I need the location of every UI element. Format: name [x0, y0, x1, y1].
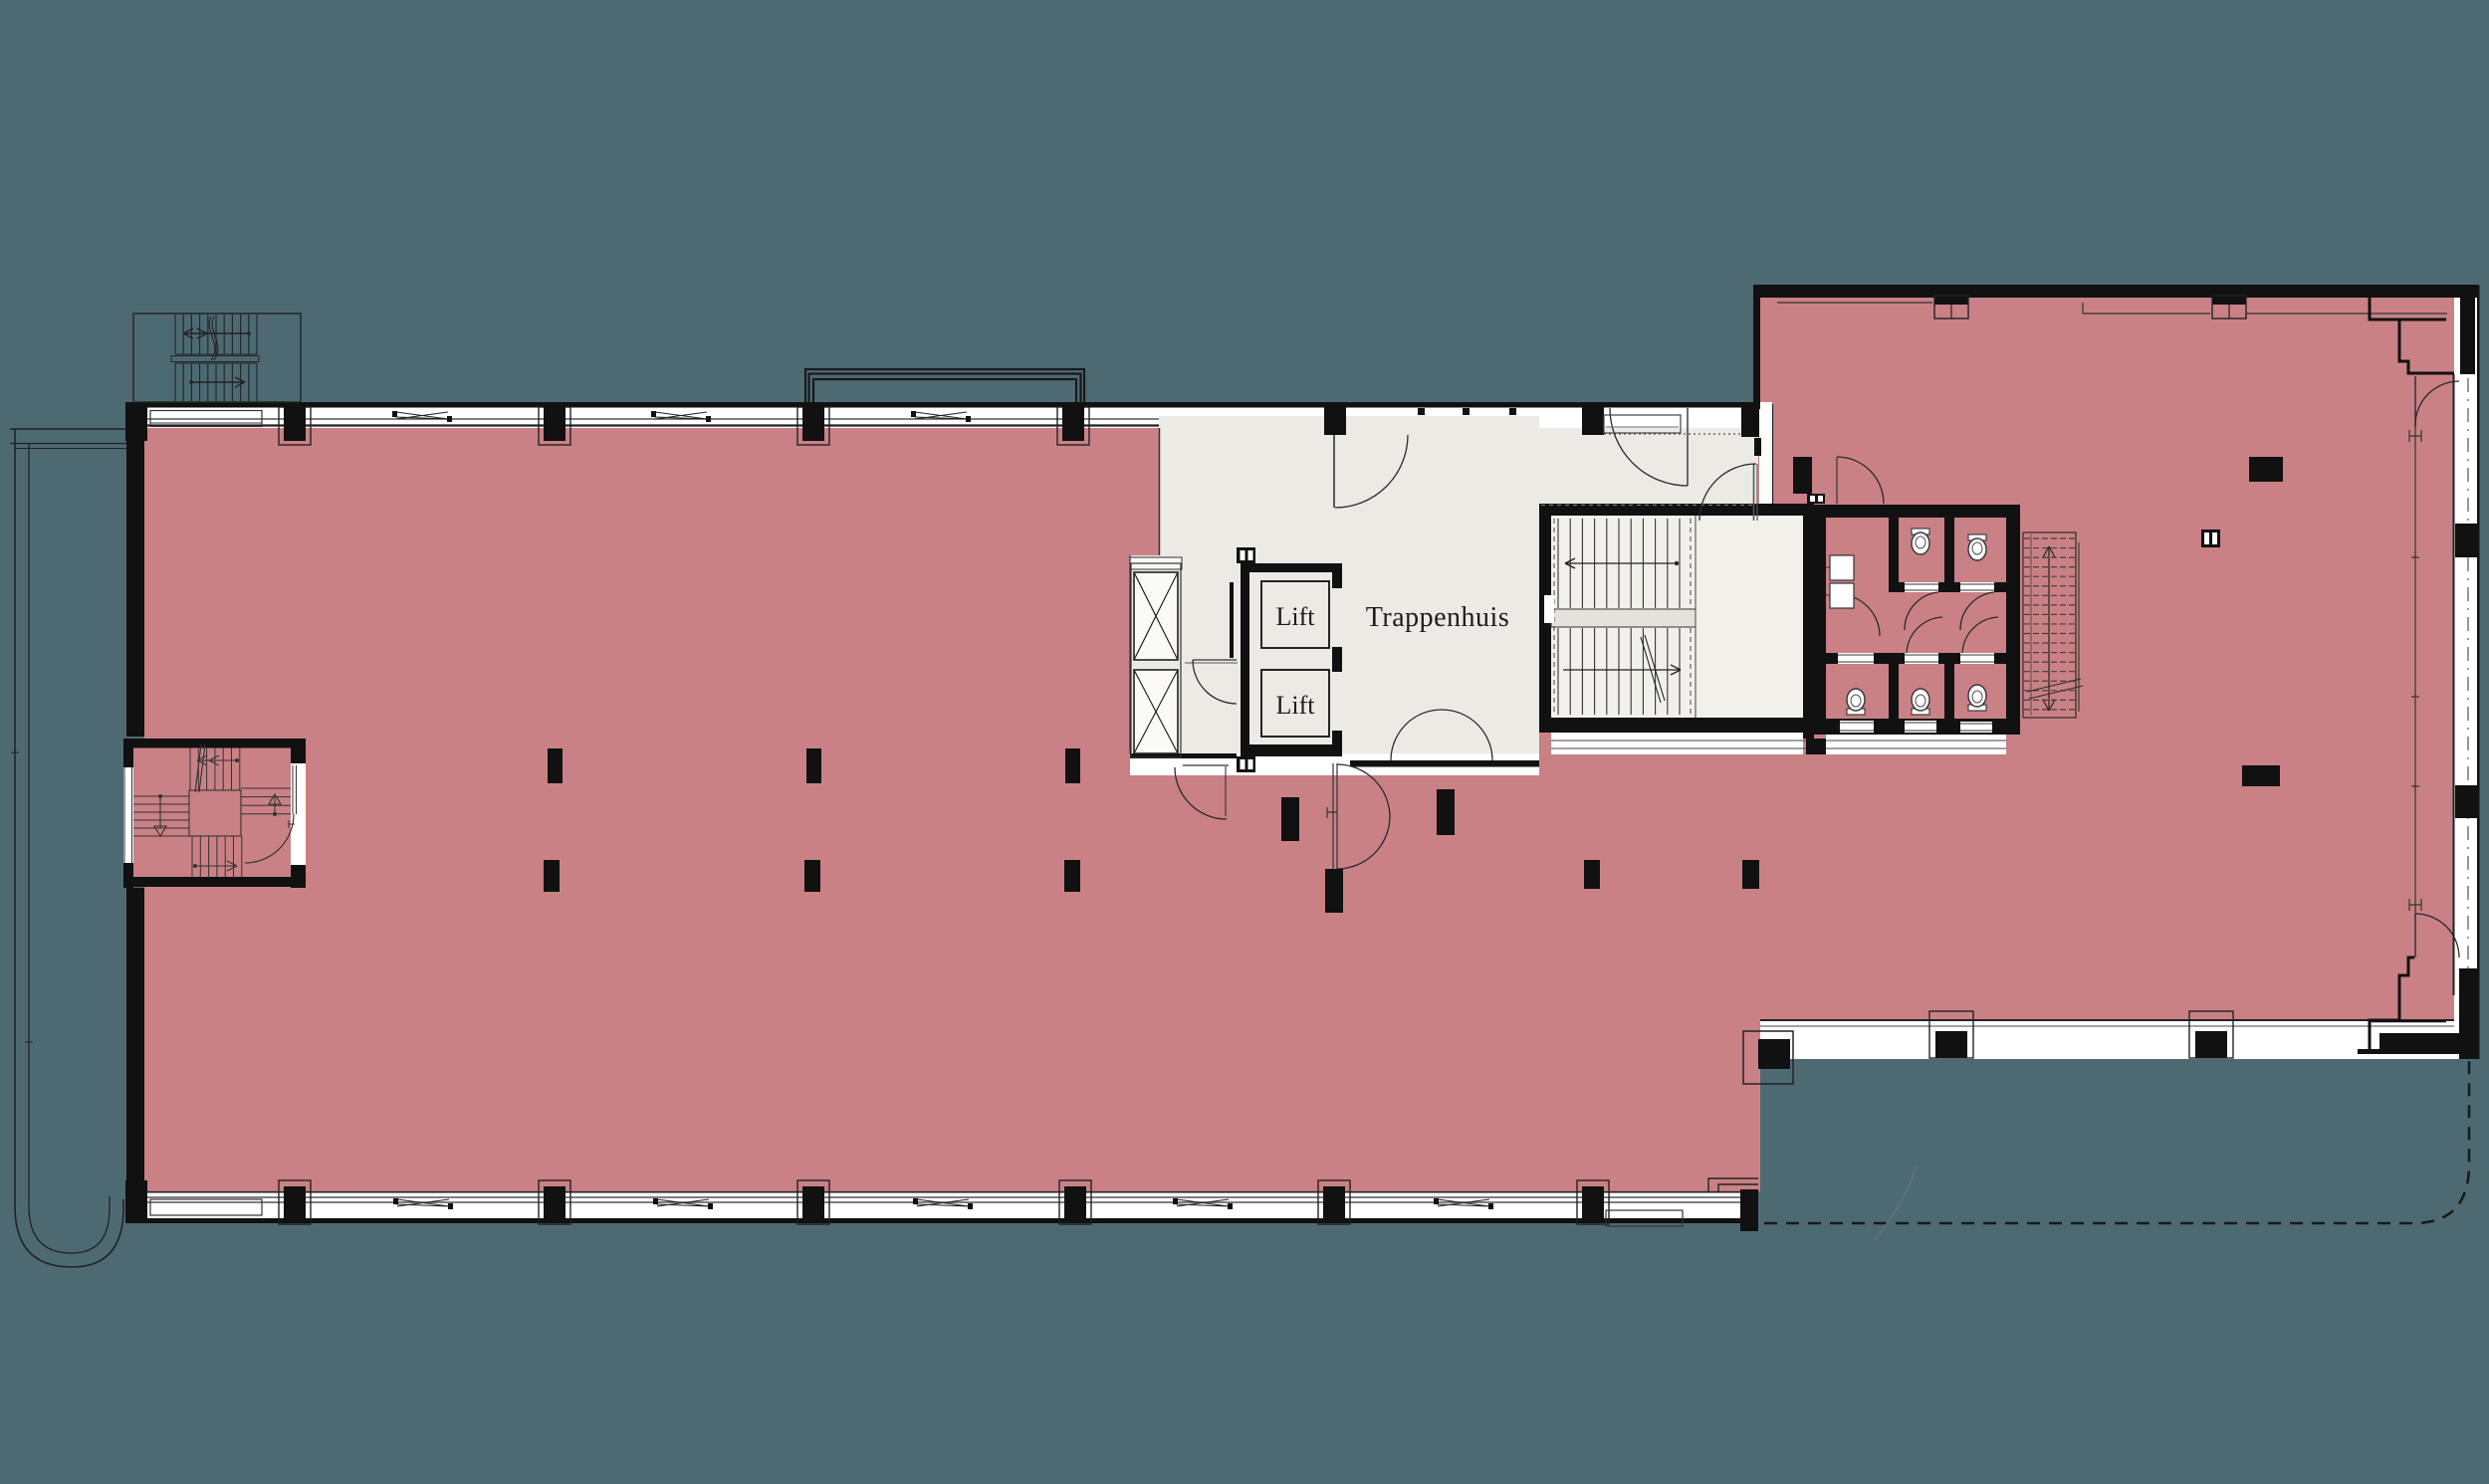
svg-text:Lift: Lift [1276, 602, 1316, 631]
svg-text:Lift: Lift [1276, 691, 1316, 720]
svg-text:Trappenhuis: Trappenhuis [1366, 602, 1509, 633]
